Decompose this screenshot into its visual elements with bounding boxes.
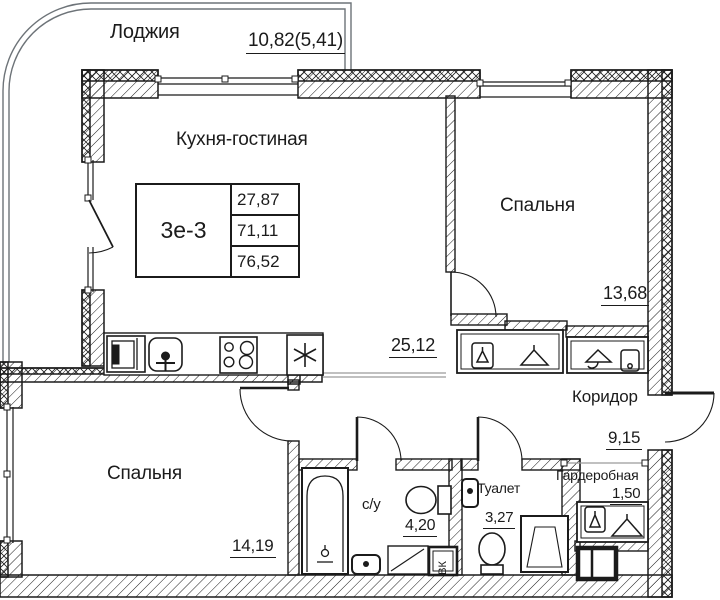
toilet-label: Туалет — [477, 481, 520, 495]
kitchen-living-label: Кухня-гостиная — [176, 130, 308, 149]
unit-areas-column: 27,87 71,11 76,52 — [230, 185, 298, 276]
toilet-area: 3,27 — [483, 510, 515, 525]
duct-label: ВК — [437, 561, 449, 575]
floor-plan: ВК Лоджия 10,82(5,41) Кухня-гостиная 25,… — [0, 0, 720, 600]
bathroom-label: с/у — [362, 497, 381, 512]
shower-tray-icon — [521, 516, 568, 572]
window-bedroom-right — [480, 72, 571, 98]
unit-area-total: 76,52 — [232, 245, 298, 276]
washing-machine-icon — [388, 546, 428, 574]
bedroom-left-area: 14,19 — [230, 537, 276, 554]
kitchen-counter — [104, 333, 323, 375]
loggia-area: 10,82(5,41) — [246, 31, 345, 50]
duct-box: ВК — [429, 547, 457, 575]
corridor-area: 9,15 — [606, 429, 642, 446]
unit-info-table: 3е-3 27,87 71,11 76,52 — [135, 183, 300, 278]
bathtub-icon — [302, 468, 348, 574]
wardrobe-label: Гардеробная — [556, 468, 639, 482]
kitchen-cabinet-icon — [107, 336, 145, 372]
electrical-panel-icon — [578, 548, 616, 579]
kitchen-living-area: 25,12 — [389, 336, 437, 354]
bedroom-right-area: 13,68 — [601, 284, 649, 302]
bedroom-left-label: Спальня — [107, 464, 182, 483]
stove-icon — [220, 337, 257, 373]
wardrobe-area: 1,50 — [610, 486, 642, 501]
corridor-label: Коридор — [572, 388, 638, 405]
unit-type: 3е-3 — [137, 185, 230, 276]
unit-area-living: 27,87 — [232, 185, 298, 214]
kitchen-sink-icon — [149, 338, 182, 371]
bedroom-right-label: Спальня — [500, 196, 575, 215]
loggia-label: Лоджия — [110, 22, 180, 42]
window-balcony-glazing — [88, 160, 93, 292]
bathroom-area: 4,20 — [403, 518, 437, 534]
unit-area-main: 71,11 — [232, 214, 298, 245]
ventilation-icon — [287, 335, 323, 375]
